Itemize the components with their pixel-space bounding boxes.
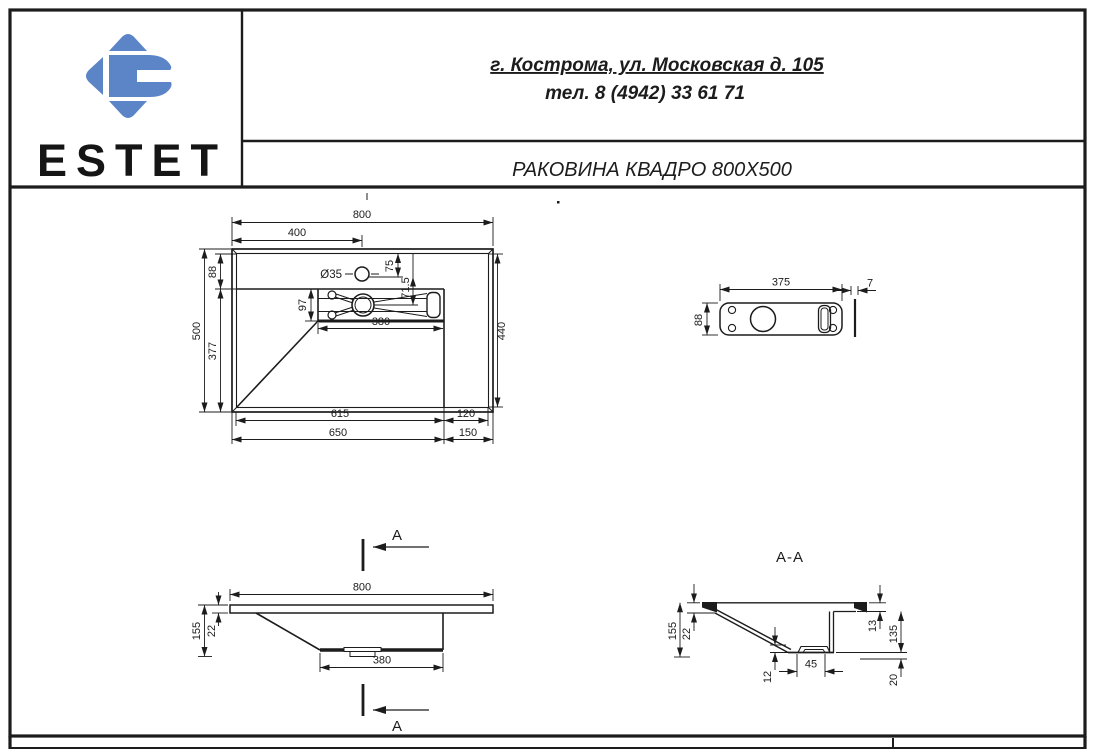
estet-logo-icon <box>86 34 172 118</box>
dim-section-outlet-height: 20 <box>888 674 900 686</box>
plate-detail-view: 375 88 7 <box>693 277 876 338</box>
drawing-title: РАКОВИНА КВАДРО 800X500 <box>512 159 792 181</box>
dim-front-total-height: 155 <box>191 622 203 640</box>
company-address: г. Кострома, ул. Московская д. 105 <box>490 55 824 76</box>
sheet-border <box>10 10 1085 749</box>
front-view: A 800 380 155 22 <box>191 527 493 735</box>
dim-top-bowl-outer-width: 650 <box>329 427 347 439</box>
technical-drawing-canvas: ESTET г. Кострома, ул. Московская д. 105… <box>0 0 1095 749</box>
dim-top-hole-to-drain: 71.5 <box>400 277 412 298</box>
dim-section-slab-thickness: 22 <box>681 628 693 640</box>
top-view: 800 400 Ø35 75 71.5 88 500 377 440 97 38… <box>191 209 508 444</box>
dim-top-recess-depth: 97 <box>297 299 309 311</box>
dim-top-hole-from-back: 75 <box>384 260 396 272</box>
section-view: A-A <box>667 549 907 686</box>
top-view-outline <box>232 249 493 412</box>
dim-top-faucet-offset: 400 <box>288 227 306 239</box>
dim-section-inner-height: 135 <box>888 625 900 643</box>
dim-plate-height: 88 <box>693 314 705 326</box>
faucet-hole <box>345 267 379 281</box>
dim-front-bottom-width: 380 <box>373 655 391 667</box>
section-cut-mark-bottom: A <box>363 684 429 735</box>
front-view-dimensions <box>198 589 493 672</box>
dim-plate-width: 375 <box>772 277 790 289</box>
dim-top-bowl-depth: 377 <box>207 342 219 360</box>
dim-plate-thickness: 7 <box>867 278 873 290</box>
dim-section-recess-step: 12 <box>762 671 774 683</box>
dim-top-overall-width: 800 <box>353 209 371 221</box>
section-view-title: A-A <box>776 549 804 566</box>
dim-top-deck-depth: 88 <box>207 266 219 278</box>
dim-section-recess-width: 45 <box>805 659 817 671</box>
dim-top-right-deck-inner: 120 <box>457 408 475 420</box>
front-view-outline <box>230 605 493 657</box>
dim-section-total-height: 155 <box>667 622 679 640</box>
dim-top-bowl-inner-width: 615 <box>331 408 349 420</box>
section-cut-mark-top: A <box>363 527 429 571</box>
drawing-sheet: ESTET г. Кострома, ул. Московская д. 105… <box>0 0 1095 749</box>
section-letter-top: A <box>392 527 402 544</box>
dim-top-right-deck-outer: 150 <box>459 427 477 439</box>
section-letter-bottom: A <box>392 718 402 735</box>
header: ESTET г. Кострома, ул. Московская д. 105… <box>37 34 824 186</box>
dim-front-overall-width: 800 <box>353 582 371 594</box>
dim-top-faucet-hole: Ø35 <box>320 269 342 281</box>
dim-front-slab-thickness: 22 <box>206 625 218 637</box>
dim-top-overall-depth: 500 <box>191 322 203 340</box>
brand-name: ESTET <box>37 135 227 186</box>
dim-section-deck-thickness: 13 <box>867 620 879 632</box>
dim-top-recess-width: 380 <box>372 316 390 328</box>
dim-top-right-inner-depth: 440 <box>496 322 508 340</box>
plate-outline <box>720 299 855 337</box>
company-phone: тел. 8 (4942) 33 61 71 <box>545 83 745 104</box>
